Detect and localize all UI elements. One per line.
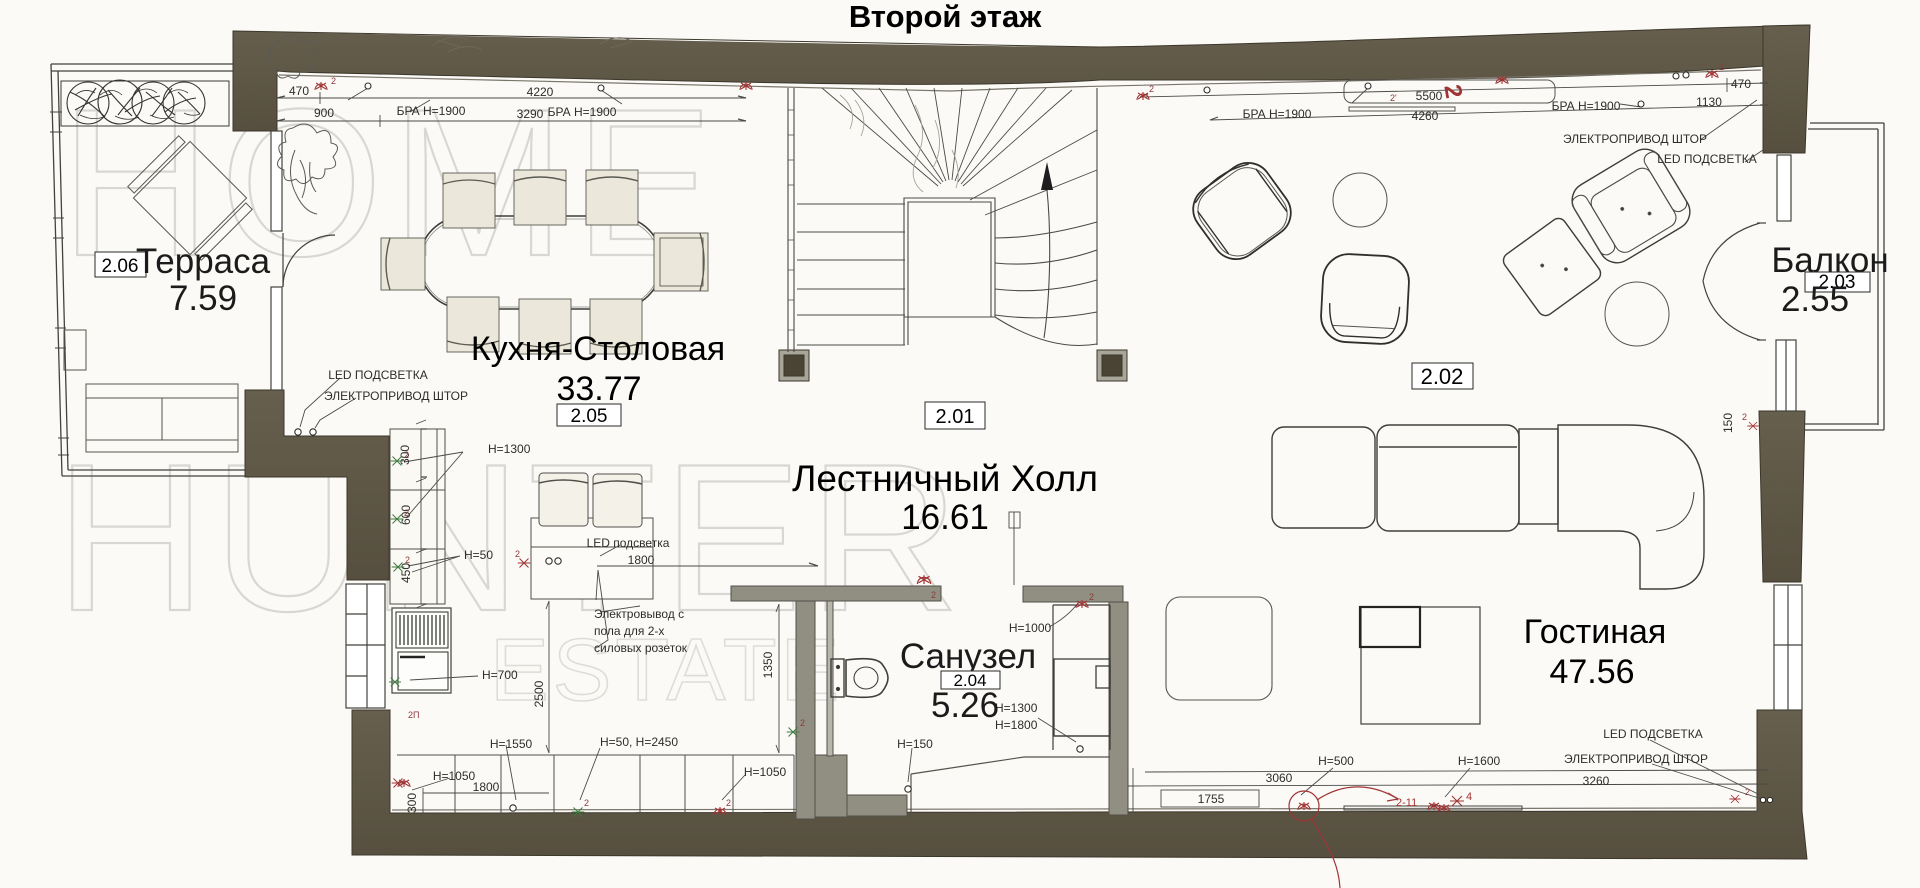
svg-text:1350: 1350 bbox=[761, 651, 775, 678]
svg-text:ЭЛЕКТРОПРИВОД ШТОР: ЭЛЕКТРОПРИВОД ШТОР bbox=[1563, 132, 1707, 146]
svg-text:2: 2 bbox=[1149, 84, 1154, 94]
svg-text:47.56: 47.56 bbox=[1549, 653, 1634, 691]
svg-text:БРА H=1900: БРА H=1900 bbox=[1243, 107, 1312, 121]
svg-text:LED ПОДСВЕТКА: LED ПОДСВЕТКА bbox=[1657, 152, 1757, 166]
svg-text:3260: 3260 bbox=[1583, 774, 1610, 788]
svg-text:H=1300: H=1300 bbox=[995, 701, 1038, 715]
svg-text:БРА H=1900: БРА H=1900 bbox=[548, 105, 617, 119]
svg-text:Второй этаж: Второй этаж bbox=[849, 0, 1042, 34]
svg-text:H=50, H=2450: H=50, H=2450 bbox=[600, 735, 678, 749]
svg-text:2: 2 bbox=[404, 450, 409, 460]
svg-text:900: 900 bbox=[314, 106, 334, 120]
svg-text:2.02: 2.02 bbox=[1421, 364, 1464, 389]
svg-text:ЭЛЕКТРОПРИВОД ШТОР: ЭЛЕКТРОПРИВОД ШТОР bbox=[1564, 752, 1708, 766]
svg-text:H=50: H=50 bbox=[464, 548, 493, 562]
svg-text:1130: 1130 bbox=[1696, 95, 1722, 109]
svg-text:2.01: 2.01 bbox=[936, 406, 975, 428]
svg-text:H=500: H=500 bbox=[1318, 754, 1354, 768]
svg-text:2: 2 bbox=[1089, 592, 1094, 602]
svg-text:16.61: 16.61 bbox=[901, 498, 989, 537]
svg-text:1800: 1800 bbox=[628, 553, 655, 567]
svg-text:Кухня-Столовая: Кухня-Столовая bbox=[471, 330, 725, 368]
svg-text:БРА H=1900: БРА H=1900 bbox=[1552, 99, 1621, 113]
svg-text:H=1600: H=1600 bbox=[1458, 754, 1501, 768]
svg-text:LED подсветка: LED подсветка bbox=[587, 536, 670, 550]
svg-text:2-11: 2-11 bbox=[1396, 797, 1417, 809]
svg-text:H=700: H=700 bbox=[482, 668, 518, 682]
svg-text:H=150: H=150 bbox=[897, 737, 933, 751]
svg-text:2.55: 2.55 bbox=[1781, 280, 1849, 319]
svg-text:ЭЛЕКТРОПРИВОД ШТОР: ЭЛЕКТРОПРИВОД ШТОР bbox=[324, 389, 468, 403]
svg-text:1800: 1800 bbox=[473, 780, 500, 794]
svg-text:2: 2 bbox=[800, 718, 805, 728]
svg-text:33.77: 33.77 bbox=[556, 370, 641, 408]
svg-text:2: 2 bbox=[1742, 412, 1747, 422]
svg-text:3060: 3060 bbox=[1266, 771, 1293, 785]
svg-text:H=1550: H=1550 bbox=[490, 737, 533, 751]
svg-text:H=1800: H=1800 bbox=[995, 718, 1038, 732]
svg-text:H=1300: H=1300 bbox=[488, 442, 531, 456]
svg-text:2500: 2500 bbox=[532, 680, 546, 707]
svg-text:150: 150 bbox=[1721, 413, 1735, 433]
svg-text:2: 2 bbox=[405, 555, 410, 565]
svg-text:3290: 3290 bbox=[517, 107, 544, 121]
svg-text:5500: 5500 bbox=[1416, 89, 1443, 103]
svg-text:2.06: 2.06 bbox=[102, 256, 139, 277]
svg-text:2: 2 bbox=[404, 508, 409, 518]
svg-text:пола для 2-х: пола для 2-х bbox=[594, 624, 664, 638]
svg-text:2: 2 bbox=[1745, 787, 1750, 797]
svg-text:Терраса: Терраса bbox=[136, 242, 271, 281]
svg-text:2: 2 bbox=[584, 798, 589, 808]
svg-text:Электровывод с: Электровывод с bbox=[594, 607, 684, 621]
svg-text:2.05: 2.05 bbox=[571, 406, 608, 427]
svg-text:4: 4 bbox=[1466, 791, 1472, 803]
svg-text:силовых розеток: силовых розеток bbox=[594, 641, 688, 655]
svg-text:H=1050: H=1050 bbox=[433, 769, 476, 783]
svg-text:2П: 2П bbox=[408, 710, 419, 720]
svg-text:470: 470 bbox=[1731, 77, 1751, 91]
svg-text:2: 2 bbox=[931, 590, 936, 600]
svg-text:2: 2 bbox=[515, 549, 520, 559]
svg-text:2: 2 bbox=[331, 76, 336, 86]
svg-text:H=1050: H=1050 bbox=[744, 765, 787, 779]
svg-text:LED ПОДСВЕТКА: LED ПОДСВЕТКА bbox=[1603, 727, 1703, 741]
svg-text:2: 2 bbox=[726, 798, 731, 808]
svg-text:2': 2' bbox=[1390, 93, 1397, 103]
svg-text:7.59: 7.59 bbox=[169, 279, 237, 318]
svg-text:2: 2 bbox=[1719, 62, 1724, 72]
svg-text:300: 300 bbox=[405, 793, 419, 813]
svg-text:1755: 1755 bbox=[1198, 792, 1225, 806]
svg-text:5.26: 5.26 bbox=[931, 686, 999, 725]
svg-text:470: 470 bbox=[289, 84, 309, 98]
svg-text:4260: 4260 bbox=[1412, 109, 1439, 123]
svg-text:450: 450 bbox=[399, 563, 413, 583]
svg-text:LED ПОДСВЕТКА: LED ПОДСВЕТКА bbox=[328, 368, 428, 382]
svg-text:H=1000: H=1000 bbox=[1009, 621, 1052, 635]
svg-text:4220: 4220 bbox=[527, 85, 554, 99]
svg-text:Лестничный Холл: Лестничный Холл bbox=[792, 458, 1098, 499]
svg-text:Гостиная: Гостиная bbox=[1524, 613, 1667, 651]
svg-text:БРА H=1900: БРА H=1900 bbox=[397, 104, 466, 118]
